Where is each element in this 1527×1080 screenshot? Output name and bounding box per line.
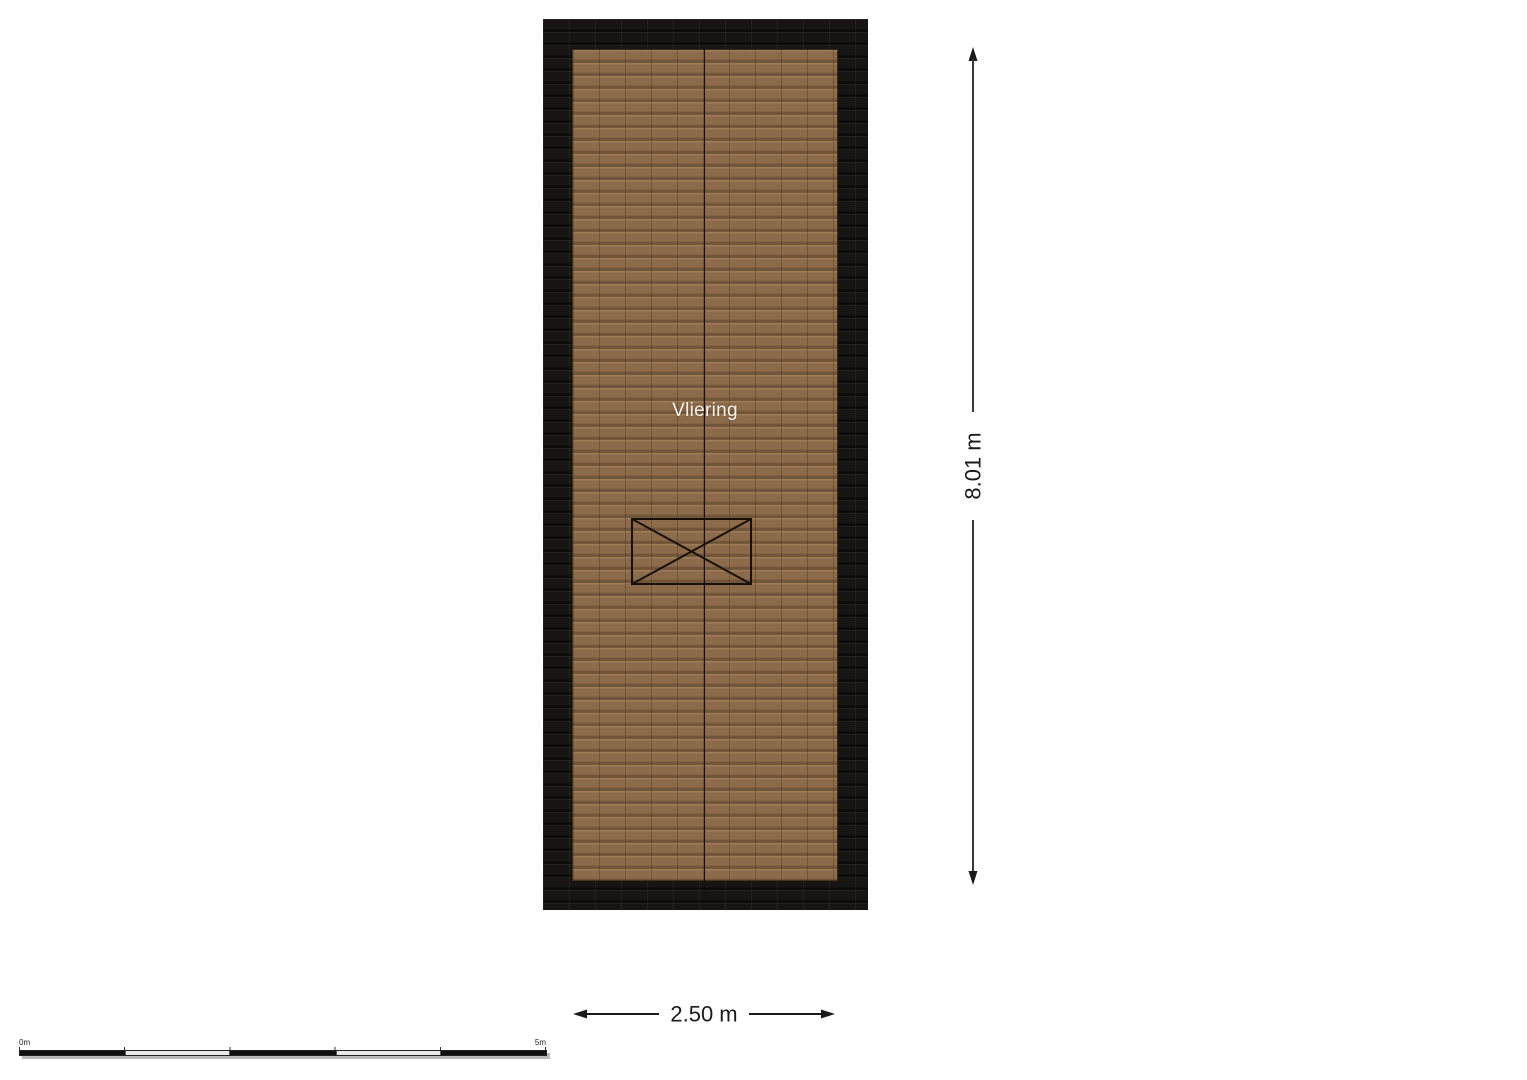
scale-segment-4 (336, 1051, 441, 1055)
scale-bar-labels: 0m 5m (19, 1038, 546, 1047)
scale-bar: 0m 5m (19, 1038, 546, 1056)
arrow-right-icon (821, 1010, 835, 1019)
scale-segment-2 (125, 1051, 230, 1055)
height-dimension-label: 8.01 m (961, 432, 986, 499)
arrow-down-icon (969, 871, 978, 885)
horizontal-dimension: 2.50 m (563, 990, 853, 1040)
width-dimension-label: 2.50 m (670, 1002, 737, 1027)
scale-bar-segments (19, 1050, 547, 1056)
attic-floor-area (572, 49, 838, 881)
room-label: Vliering (573, 400, 837, 422)
scale-start-label: 0m (19, 1038, 30, 1047)
arrow-left-icon (573, 1010, 587, 1019)
roof-ridge-line (704, 49, 705, 892)
scale-segment-1 (20, 1051, 125, 1055)
scale-segment-5 (441, 1051, 546, 1055)
vertical-dimension: 8.01 m (940, 40, 1010, 895)
floorplan-canvas: Vliering 8.01 m 2.50 m 0m 5m (0, 0, 1527, 1080)
scale-segment-3 (230, 1051, 335, 1055)
arrow-up-icon (969, 47, 978, 61)
scale-end-label: 5m (535, 1038, 546, 1047)
roof-hatch-opening (631, 518, 752, 585)
roof-border-band: Vliering (543, 19, 868, 910)
